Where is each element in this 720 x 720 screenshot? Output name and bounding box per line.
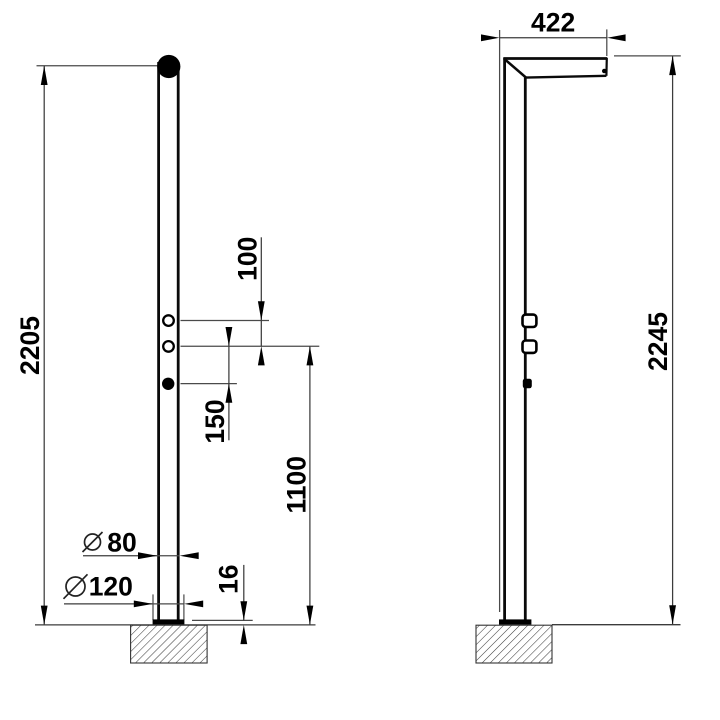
- svg-text:1100: 1100: [282, 456, 312, 514]
- svg-text:16: 16: [213, 564, 243, 593]
- svg-text:2205: 2205: [15, 316, 45, 375]
- svg-text:422: 422: [531, 8, 575, 38]
- svg-text:120: 120: [89, 571, 133, 601]
- svg-text:80: 80: [107, 528, 136, 558]
- svg-text:2245: 2245: [643, 312, 673, 371]
- svg-text:100: 100: [233, 237, 263, 281]
- svg-text:150: 150: [200, 399, 230, 443]
